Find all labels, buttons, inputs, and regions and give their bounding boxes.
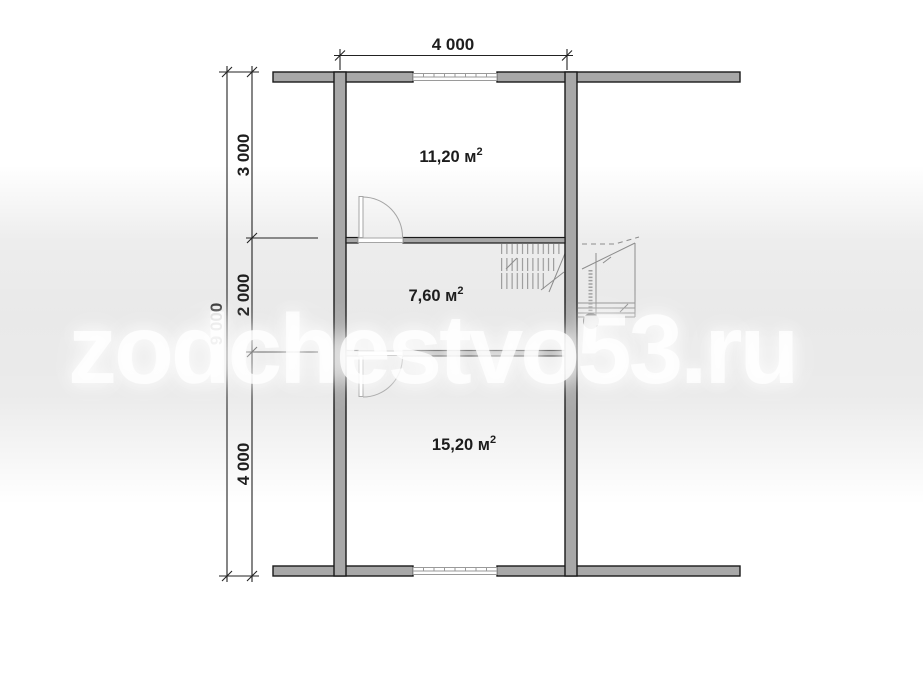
- stair-diagonal-1: [541, 272, 564, 290]
- door-upper: [358, 197, 403, 243]
- site-watermark: zodchestvo53.ru: [68, 300, 796, 398]
- window-top: [413, 74, 497, 81]
- bottom-wall-right: [497, 566, 740, 576]
- interior-wall-upper: [403, 238, 565, 244]
- room-bottom-area-label: 15,20 м2: [432, 434, 496, 454]
- door-upper-frame: [358, 238, 403, 243]
- stair-diagonal-2: [549, 251, 566, 292]
- stair-stringer-diagonal: [582, 243, 635, 269]
- room-top-area-label: 11,20 м2: [419, 146, 482, 166]
- stair-dashed-landing: [582, 237, 639, 244]
- interior-wall-upper-stub: [346, 238, 358, 244]
- door-upper-swing-arc: [363, 197, 403, 238]
- dim-label-top-width: 4 000: [432, 35, 475, 54]
- dim-label-segment-3000: 3 000: [234, 134, 253, 177]
- dim-label-segment-4000: 4 000: [234, 443, 253, 486]
- door-upper-leaf: [359, 197, 363, 238]
- top-wall-right: [497, 72, 740, 82]
- floor-plan-page: 4 000 9 000 3 000 2 000 4 000 11,20 м2 7…: [0, 0, 923, 693]
- window-bottom: [413, 568, 497, 575]
